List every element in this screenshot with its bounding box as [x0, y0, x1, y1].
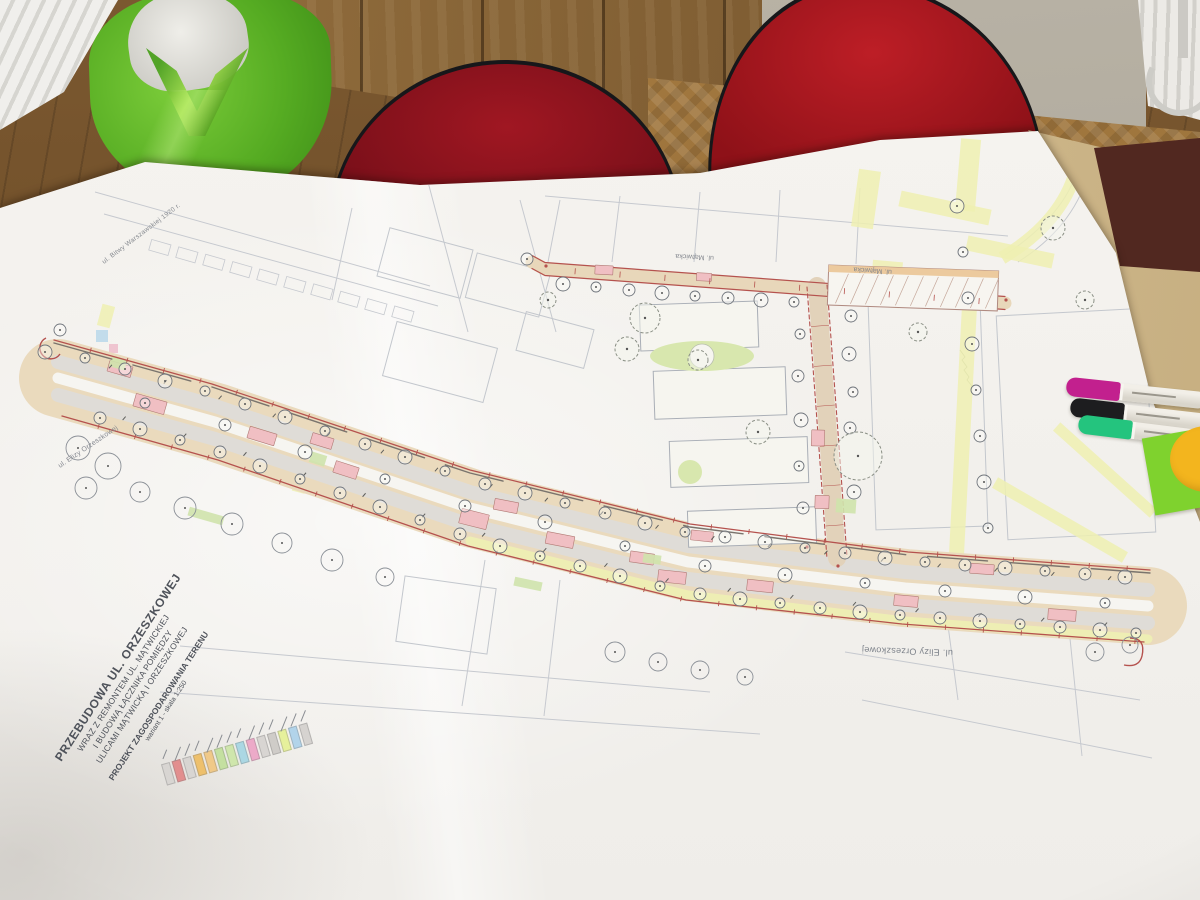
street-label-matwicka-west: ul. Mątwicka [675, 252, 714, 261]
marker-ring [1119, 383, 1124, 400]
street-label-orzeszkowej-left: ul. Elizy Orzeszkowej [57, 424, 119, 469]
street-label-bitwy: ul. Bitwy Warszawskiej 1920 r. [101, 202, 182, 265]
photo-scene: ul. Bitwy Warszawskiej 1920 r. ul. Elizy… [0, 0, 1200, 900]
street-label-orzeszkowej-main: ul. Elizy Orzeszkowej [861, 645, 953, 658]
marker-logo [1136, 413, 1180, 420]
marker-ring [1131, 422, 1136, 439]
marker-logo [1132, 392, 1176, 399]
site-plan-sheet: ul. Bitwy Warszawskiej 1920 r. ul. Elizy… [0, 0, 1200, 900]
